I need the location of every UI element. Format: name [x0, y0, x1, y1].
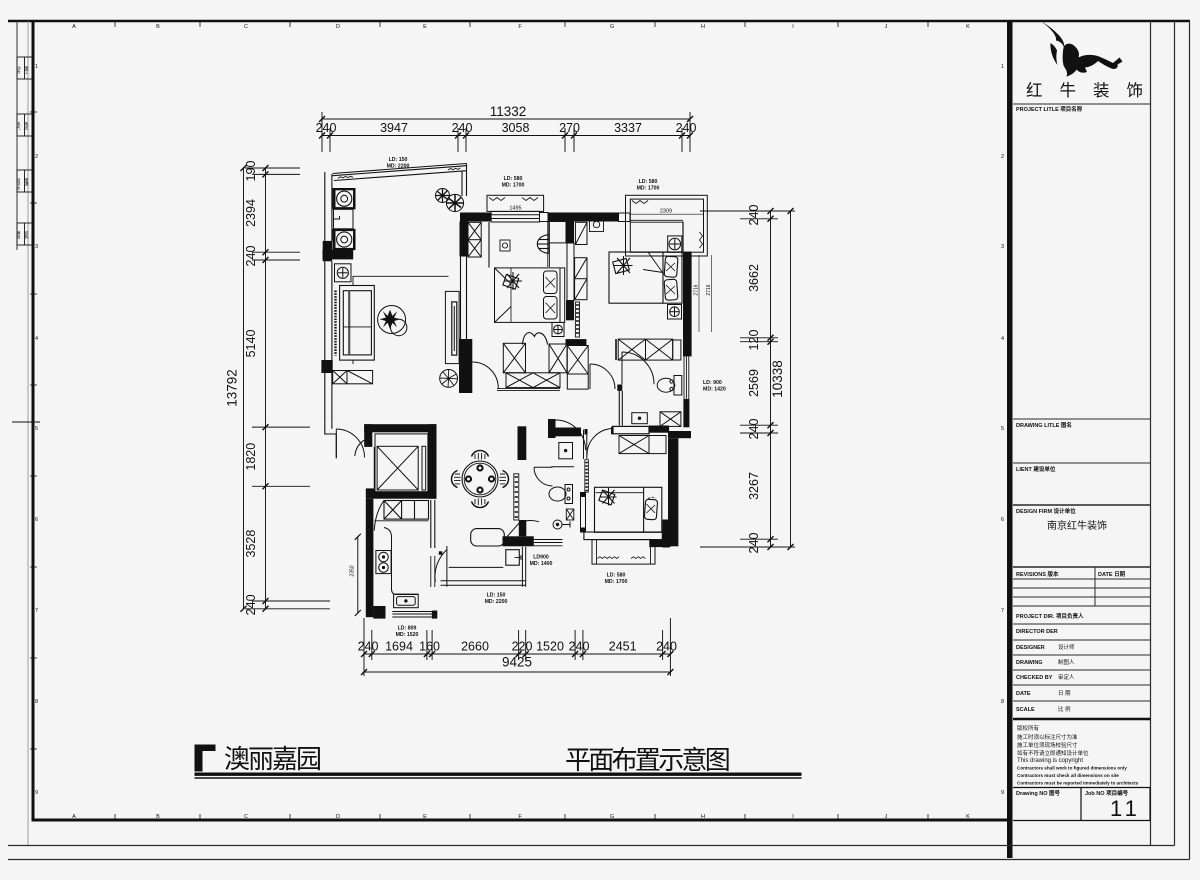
- svg-text:K: K: [966, 24, 970, 30]
- svg-text:电气: 电气: [17, 121, 22, 130]
- svg-text:3267: 3267: [747, 472, 761, 500]
- svg-text:1: 1: [35, 64, 38, 70]
- svg-text:3: 3: [35, 244, 38, 250]
- svg-text:MD: 2200: MD: 2200: [485, 599, 508, 605]
- svg-text:LD: 150: LD: 150: [487, 593, 506, 599]
- svg-text:暖工: 暖工: [25, 65, 30, 74]
- svg-text:5140: 5140: [244, 330, 258, 358]
- svg-text:1820: 1820: [244, 443, 258, 471]
- svg-text:6: 6: [35, 517, 38, 523]
- svg-text:2716: 2716: [706, 284, 712, 295]
- svg-text:REVISIONS 版本: REVISIONS 版本: [1016, 570, 1059, 578]
- svg-text:3058: 3058: [502, 121, 530, 135]
- svg-text:3662: 3662: [747, 264, 761, 292]
- svg-text:给排水: 给排水: [17, 177, 22, 190]
- svg-text:4: 4: [1001, 336, 1004, 342]
- svg-text:7: 7: [35, 608, 38, 614]
- svg-text:LD: 580: LD: 580: [607, 573, 626, 579]
- svg-text:比 例: 比 例: [1058, 705, 1071, 713]
- svg-text:PROJECT LITLE 项目名称: PROJECT LITLE 项目名称: [1016, 105, 1083, 113]
- svg-text:LD: 900: LD: 900: [703, 380, 722, 386]
- svg-text:3528: 3528: [244, 530, 258, 558]
- svg-text:2: 2: [1001, 154, 1004, 160]
- svg-text:3947: 3947: [380, 121, 408, 135]
- svg-text:MD: 1400: MD: 1400: [530, 561, 553, 567]
- svg-text:日 期: 日 期: [1058, 690, 1071, 697]
- svg-text:设计师: 设计师: [1058, 643, 1075, 651]
- svg-text:电讯: 电讯: [25, 121, 30, 131]
- svg-text:7: 7: [1001, 608, 1004, 614]
- svg-text:DESIGN FIRM 设计单位: DESIGN FIRM 设计单位: [1016, 507, 1076, 515]
- svg-text:DRAWING LITLE 图名: DRAWING LITLE 图名: [1016, 421, 1072, 429]
- svg-text:270: 270: [559, 121, 580, 135]
- svg-text:220: 220: [512, 640, 533, 654]
- svg-text:240: 240: [656, 640, 677, 654]
- svg-text:如有不符请立即通知设计单位: 如有不符请立即通知设计单位: [1017, 749, 1089, 757]
- svg-text:MD: 1420: MD: 1420: [703, 387, 726, 393]
- svg-text:8: 8: [1001, 699, 1004, 705]
- svg-text:240: 240: [358, 640, 379, 654]
- svg-text:Contractors must be reported i: Contractors must be reported immediately…: [1017, 781, 1139, 786]
- svg-text:施工时须以标注尺寸为准: 施工时须以标注尺寸为准: [1017, 733, 1078, 741]
- svg-text:动力: 动力: [17, 65, 22, 75]
- svg-text:LD: 150: LD: 150: [389, 157, 408, 163]
- svg-text:1495: 1495: [509, 206, 521, 212]
- svg-text:9425: 9425: [502, 655, 532, 670]
- svg-text:澳丽嘉园: 澳丽嘉园: [224, 744, 320, 774]
- svg-text:4: 4: [35, 336, 38, 342]
- svg-text:2660: 2660: [461, 640, 489, 654]
- svg-text:LD: 809: LD: 809: [398, 626, 417, 632]
- svg-text:1: 1: [1001, 64, 1004, 70]
- svg-text:LD: 580: LD: 580: [504, 176, 523, 182]
- svg-text:2309: 2309: [660, 209, 672, 215]
- svg-text:H: H: [701, 24, 705, 30]
- svg-text:LIENT 建设单位: LIENT 建设单位: [1016, 465, 1056, 473]
- svg-text:红牛装饰: 红牛装饰: [1026, 81, 1160, 100]
- svg-text:240: 240: [747, 419, 761, 440]
- svg-text:A: A: [72, 24, 76, 30]
- svg-text:制图人: 制图人: [1058, 658, 1075, 666]
- svg-text:8: 8: [35, 699, 38, 705]
- svg-text:版权所有: 版权所有: [1017, 724, 1040, 732]
- svg-text:D: D: [336, 24, 340, 30]
- svg-text:DATE 日期: DATE 日期: [1098, 570, 1126, 578]
- svg-text:240: 240: [569, 640, 590, 654]
- svg-text:2569: 2569: [747, 369, 761, 397]
- svg-text:D: D: [336, 814, 340, 820]
- svg-text:240: 240: [747, 205, 761, 226]
- svg-text:5: 5: [35, 426, 38, 432]
- svg-text:240: 240: [244, 246, 258, 267]
- svg-text:DATE: DATE: [1016, 691, 1031, 697]
- svg-text:240: 240: [316, 121, 337, 135]
- svg-text:E: E: [423, 24, 427, 30]
- svg-text:1694: 1694: [385, 640, 413, 654]
- svg-text:B: B: [156, 814, 160, 820]
- svg-text:LD: 580: LD: 580: [639, 179, 658, 185]
- svg-text:MD: 1520: MD: 1520: [396, 632, 419, 638]
- svg-text:Drawing NO 图号: Drawing NO 图号: [1016, 789, 1061, 797]
- svg-text:Contractors must check all dim: Contractors must check all dimensions on…: [1017, 773, 1119, 778]
- svg-text:MD: 1700: MD: 1700: [637, 186, 660, 192]
- svg-text:SCALE: SCALE: [1016, 707, 1035, 713]
- svg-text:建筑: 建筑: [17, 230, 22, 240]
- svg-text:J: J: [885, 24, 888, 30]
- svg-text:2716: 2716: [694, 284, 700, 295]
- svg-text:J: J: [885, 814, 888, 820]
- svg-text:3337: 3337: [614, 121, 642, 135]
- svg-text:审定人: 审定人: [1058, 673, 1075, 681]
- svg-text:LD900: LD900: [533, 555, 549, 561]
- svg-text:13792: 13792: [225, 369, 240, 407]
- svg-text:9: 9: [35, 790, 38, 796]
- svg-text:H: H: [701, 814, 705, 820]
- svg-text:1520: 1520: [536, 640, 564, 654]
- svg-text:K: K: [966, 814, 970, 820]
- svg-text:5: 5: [1001, 426, 1004, 432]
- svg-text:Contractors shall work to figu: Contractors shall work to figured dimens…: [1017, 766, 1127, 771]
- svg-text:160: 160: [419, 640, 440, 654]
- svg-text:240: 240: [747, 533, 761, 554]
- svg-text:E: E: [423, 814, 427, 820]
- svg-text:11332: 11332: [490, 104, 527, 119]
- svg-text:11: 11: [1110, 796, 1141, 821]
- svg-text:CHECKED BY: CHECKED BY: [1016, 675, 1053, 681]
- svg-text:2394: 2394: [244, 199, 258, 227]
- svg-text:240: 240: [244, 594, 258, 615]
- svg-text:This drawing is copyright: This drawing is copyright: [1017, 758, 1083, 764]
- svg-text:DIRECTOR DER: DIRECTOR DER: [1016, 629, 1058, 635]
- svg-text:C: C: [244, 814, 248, 820]
- svg-text:10338: 10338: [770, 360, 785, 398]
- svg-text:6: 6: [1001, 517, 1004, 523]
- svg-text:结构: 结构: [25, 230, 30, 240]
- svg-text:190: 190: [244, 161, 258, 182]
- svg-text:暖通: 暖通: [25, 177, 30, 187]
- svg-text:240: 240: [452, 121, 473, 135]
- svg-text:G: G: [610, 24, 614, 30]
- svg-text:G: G: [610, 814, 614, 820]
- svg-text:120: 120: [747, 330, 761, 351]
- svg-text:2350: 2350: [350, 565, 356, 576]
- svg-text:平面布置示意图: 平面布置示意图: [565, 745, 729, 775]
- svg-text:240: 240: [676, 121, 697, 135]
- svg-text:施工单位须现场校验尺寸: 施工单位须现场校验尺寸: [1017, 741, 1078, 749]
- svg-text:C: C: [244, 24, 248, 30]
- svg-text:A: A: [72, 814, 76, 820]
- svg-text:PROJECT DIR. 项目负责人: PROJECT DIR. 项目负责人: [1016, 612, 1084, 620]
- svg-text:9: 9: [1001, 790, 1004, 796]
- svg-text:2: 2: [35, 154, 38, 160]
- svg-text:南京红牛装饰: 南京红牛装饰: [1047, 519, 1107, 532]
- svg-text:DRAWING: DRAWING: [1016, 660, 1043, 666]
- svg-text:MD: 1700: MD: 1700: [502, 183, 525, 189]
- svg-text:2451: 2451: [609, 640, 637, 654]
- svg-text:DESIGNER: DESIGNER: [1016, 645, 1045, 651]
- svg-text:MD: 1700: MD: 1700: [605, 579, 628, 585]
- svg-text:3: 3: [1001, 244, 1004, 250]
- svg-text:B: B: [156, 24, 160, 30]
